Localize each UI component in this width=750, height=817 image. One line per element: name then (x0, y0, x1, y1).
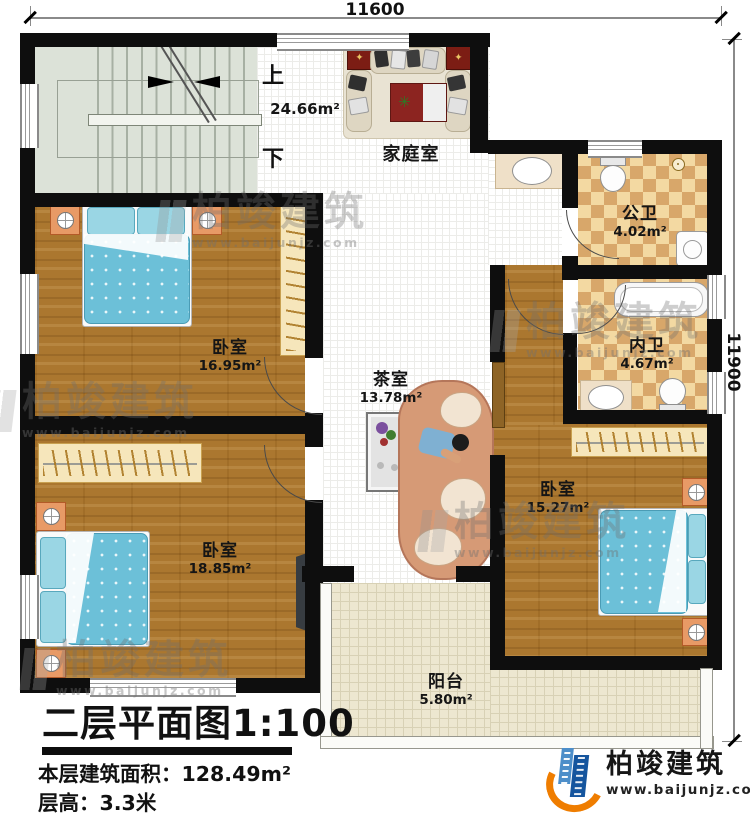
family-room-area: 24.66m² (250, 100, 360, 118)
wall (20, 33, 490, 47)
tea-room-label: 茶室 13.78m² (346, 370, 436, 407)
nightstand (36, 649, 66, 678)
lamp-icon (57, 212, 74, 229)
wardrobe (571, 427, 709, 457)
room-area: 24.66m² (250, 100, 360, 118)
sofa-cushion (390, 49, 407, 69)
wall (562, 140, 578, 208)
nightstand (682, 478, 710, 506)
room-name: 家庭室 (366, 144, 456, 166)
bathtub-inner (620, 287, 703, 312)
company-logo: 柏竣建筑 www.baijunjz.com (546, 748, 750, 802)
floor-area-value: 128.49m² (182, 762, 291, 786)
room-name: 卧室 (175, 541, 265, 561)
floor-drain (672, 158, 685, 171)
floor-area-label: 本层建筑面积： (38, 762, 182, 786)
room-area: 18.85m² (175, 561, 265, 577)
public-bathroom-label: 公卫 4.02m² (595, 204, 685, 241)
floor-height-value: 3.3米 (100, 791, 157, 815)
window (707, 275, 726, 319)
balcony-floor (490, 668, 706, 741)
floor-plan-page: ✳ (0, 0, 750, 817)
company-logo-icon (546, 748, 598, 802)
sofa-cushion (422, 49, 440, 70)
room-area: 16.95m² (185, 358, 275, 374)
hanger-marks (43, 450, 197, 477)
floor-area-line: 本层建筑面积：128.49m² (38, 757, 291, 787)
wall (563, 333, 577, 412)
bed-pillow (137, 207, 185, 235)
window (588, 140, 642, 158)
person-head (452, 434, 469, 451)
dimension-width-label: 11600 (300, 0, 450, 20)
sofa-side-table (446, 45, 471, 70)
inner-bathroom-label: 内卫 4.67m² (602, 336, 692, 373)
room-area: 4.67m² (602, 356, 692, 372)
room-name: 茶室 (346, 370, 436, 390)
hanger-marks (576, 432, 704, 452)
sink (588, 385, 624, 410)
bedroom-right-label: 卧室 15.27m² (513, 480, 603, 517)
wall (490, 455, 505, 656)
room-name: 公卫 (595, 204, 685, 224)
family-room-label: 家庭室 (366, 144, 456, 166)
wall (20, 193, 323, 207)
door-leaf (492, 362, 505, 428)
wall (490, 656, 722, 670)
bedroom-bottom-left-label: 卧室 18.85m² (175, 541, 265, 578)
nightstand (192, 206, 222, 235)
tea-cup (391, 464, 398, 471)
wall (490, 265, 505, 362)
nightstand (50, 206, 80, 235)
wall (20, 416, 323, 434)
company-website: www.baijunjz.com (606, 782, 750, 798)
room-area: 5.80m² (401, 692, 491, 708)
room-name: 阳台 (401, 672, 491, 692)
lamp-icon (688, 484, 705, 501)
bed-pillow (688, 514, 706, 558)
sink (512, 157, 552, 185)
window (20, 575, 39, 639)
balcony-label: 阳台 5.80m² (401, 672, 491, 709)
stair-direction-arrow (194, 76, 220, 88)
window (277, 33, 409, 51)
room-area: 4.02m² (595, 224, 685, 240)
sofa-cushion (374, 49, 389, 68)
couch-cushion (440, 392, 482, 428)
room-area: 15.27m² (513, 500, 603, 516)
lamp-icon (43, 655, 60, 672)
company-name: 柏竣建筑 (606, 748, 750, 782)
sofa-cushion (406, 49, 420, 67)
wall (562, 265, 722, 279)
floor-height-label: 层高： (38, 791, 100, 815)
wall (305, 193, 323, 358)
lamp-icon (688, 624, 705, 641)
bed-pillow (40, 591, 66, 643)
title-underline (42, 747, 292, 755)
stairs-down-label: 下 (262, 141, 284, 173)
stair-direction-arrow (148, 76, 174, 88)
room-name: 卧室 (513, 480, 603, 500)
balcony-railing (700, 668, 713, 749)
bed-pillow (688, 560, 706, 604)
lamp-icon (43, 508, 60, 525)
nightstand (682, 618, 710, 646)
wardrobe (38, 443, 202, 483)
stairs-up-label: 上 (262, 58, 284, 90)
flower-decor (380, 438, 388, 446)
stair-handrail (88, 114, 262, 126)
room-area: 13.78m² (346, 390, 436, 406)
flower-decor (386, 430, 396, 440)
couch-cushion (440, 478, 486, 520)
window (20, 274, 39, 354)
bed-pillow (40, 537, 66, 589)
couch-cushion (414, 528, 462, 566)
wall (470, 33, 488, 153)
bed-pillow (87, 207, 135, 235)
sofa-cushion (447, 96, 468, 115)
washer-door (683, 240, 702, 259)
bedroom-top-left-label: 卧室 16.95m² (185, 338, 275, 375)
bathtub (614, 282, 709, 317)
plant-icon: ✳ (398, 93, 411, 111)
watermark-logo-icon (0, 390, 17, 432)
plan-title: 二层平面图1:100 (42, 693, 355, 747)
wall (563, 410, 722, 424)
wall (302, 566, 354, 582)
floor-height-line: 层高：3.3米 (38, 786, 156, 816)
hanger-marks (286, 209, 307, 351)
wall (456, 566, 490, 582)
lamp-icon (199, 212, 216, 229)
room-name: 卧室 (185, 338, 275, 358)
tea-cup (377, 462, 384, 469)
room-name: 内卫 (602, 336, 692, 356)
window (20, 84, 39, 148)
nightstand (36, 502, 66, 531)
dimension-height-label: 11900 (723, 332, 743, 392)
